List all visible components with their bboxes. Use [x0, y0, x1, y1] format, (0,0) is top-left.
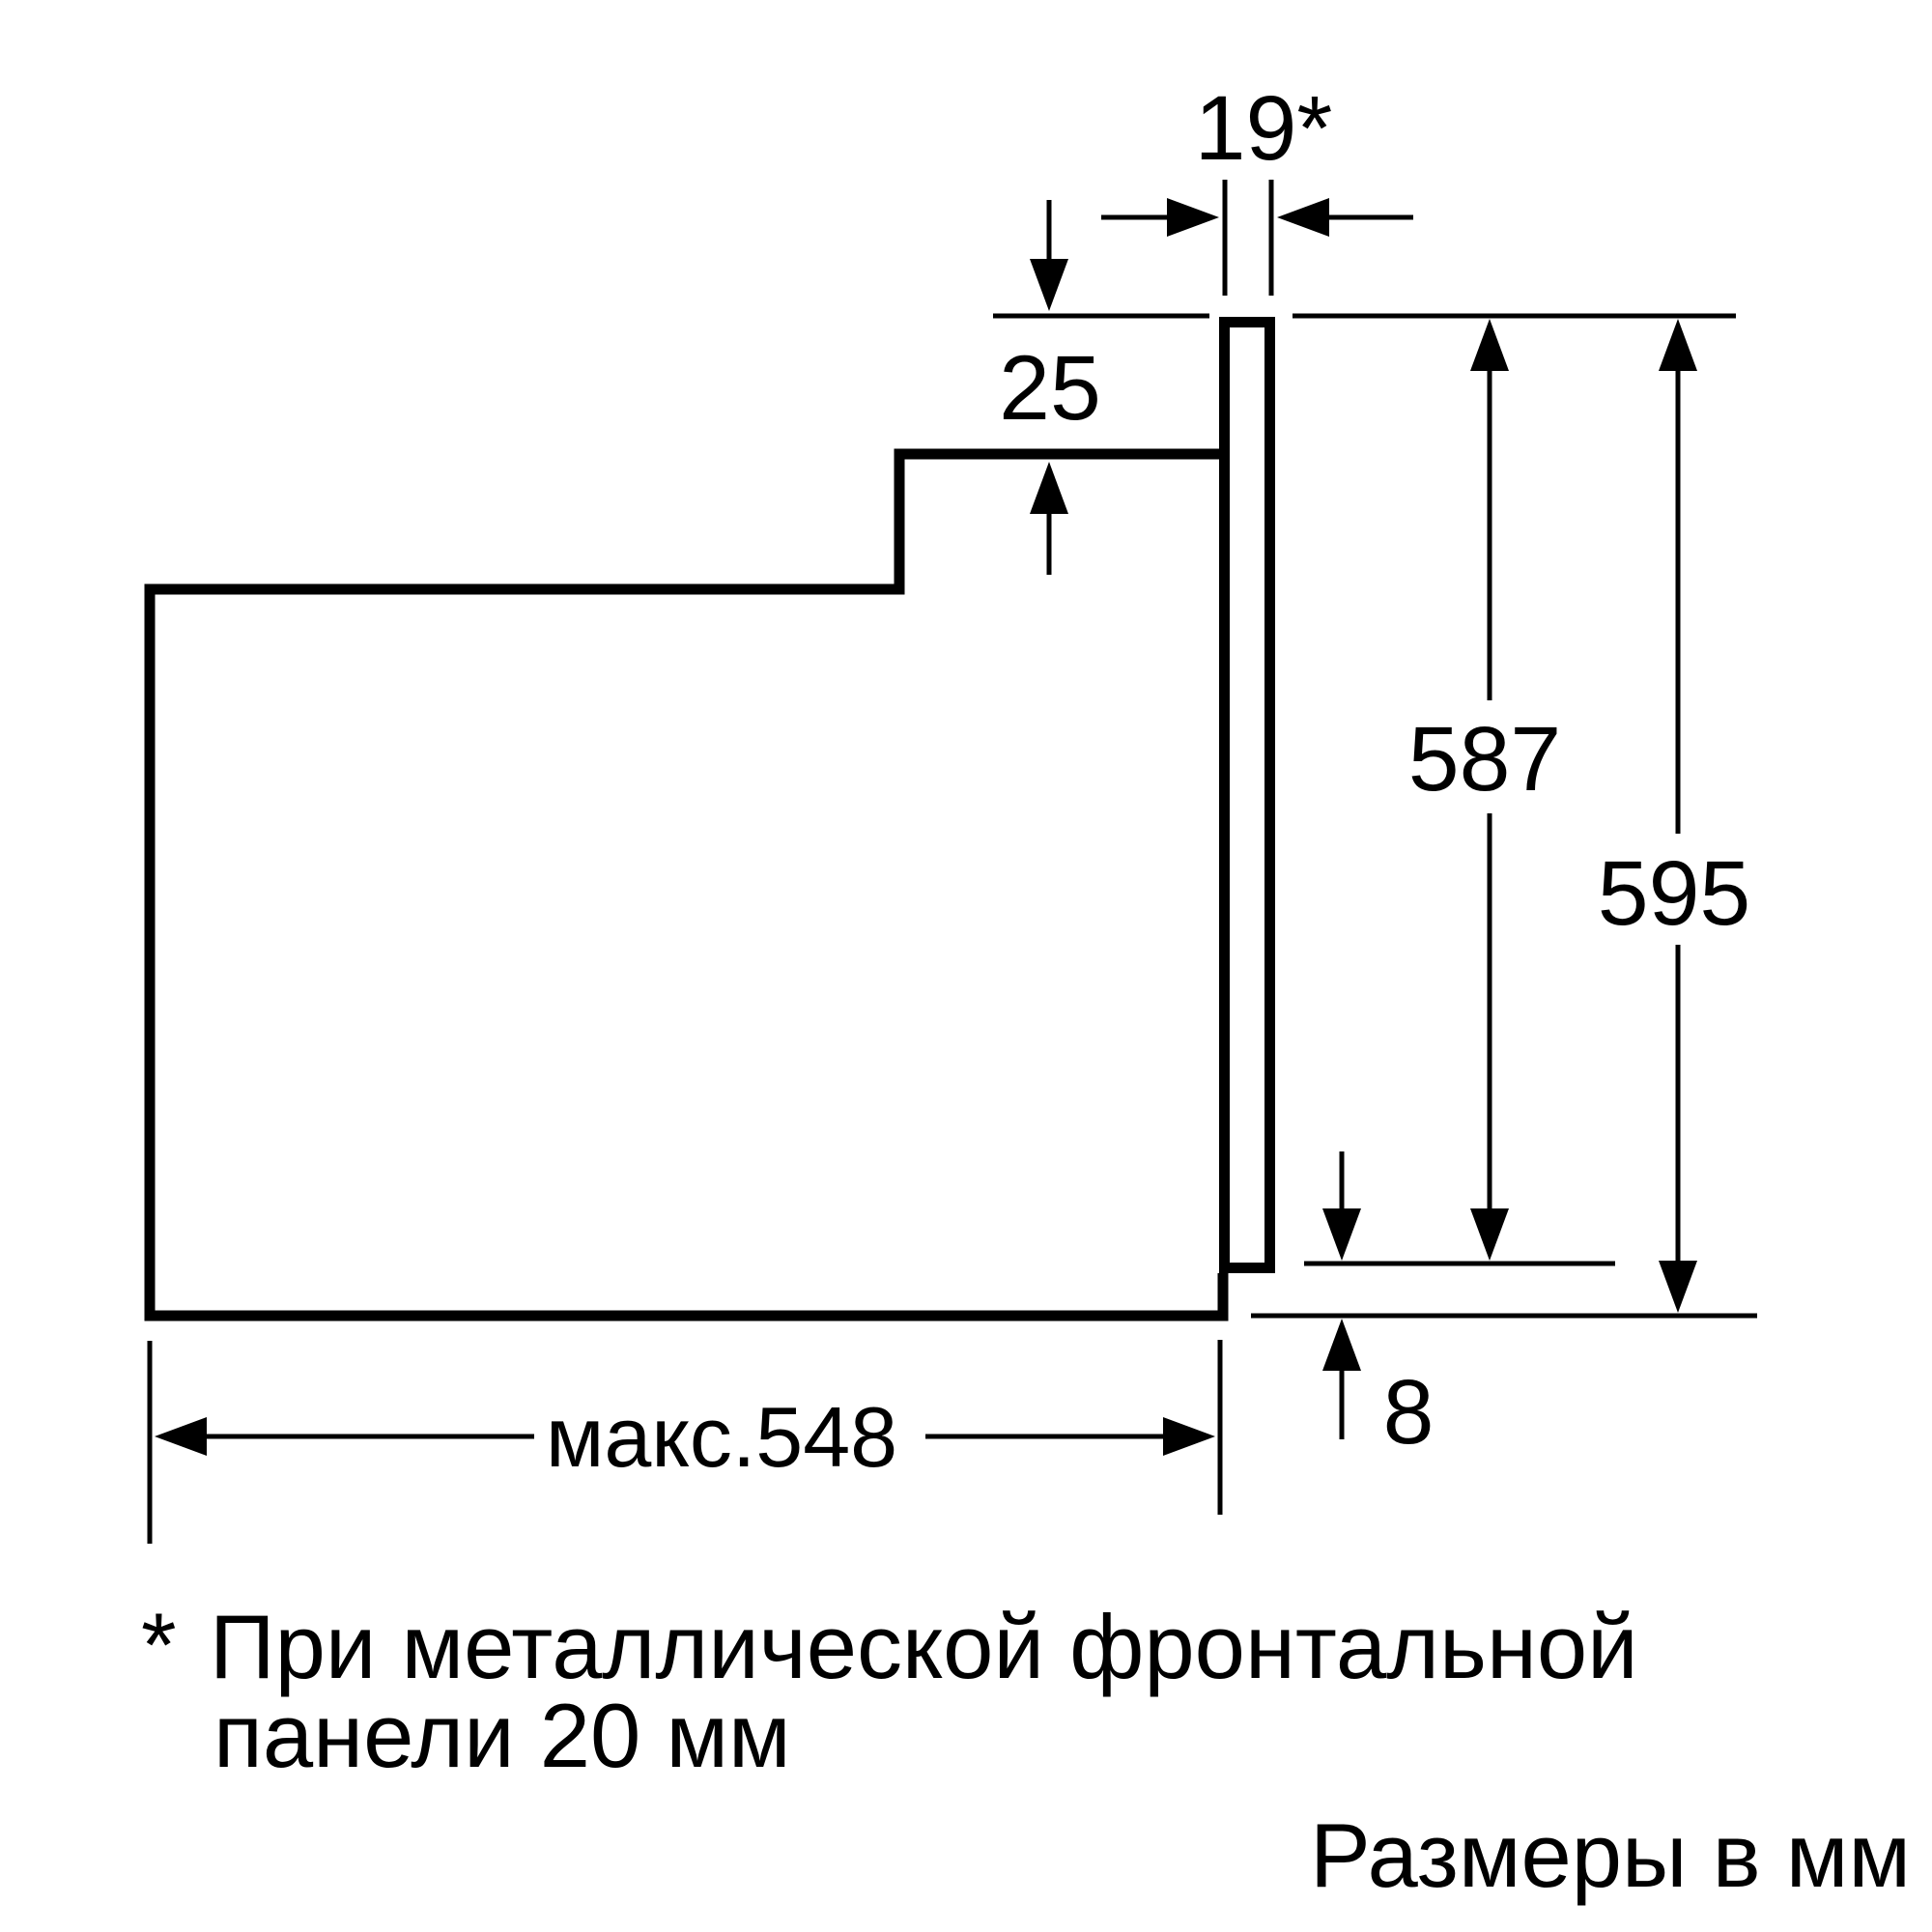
units-label: Размеры в мм [1310, 1804, 1911, 1906]
dim-label-step-height: 25 [999, 337, 1101, 440]
dim-25-arrow-down [1030, 200, 1068, 311]
dim-25-arrow-up [1030, 462, 1068, 575]
oven-body-outline [150, 454, 1223, 1316]
footnote-line2: панели 20 мм [213, 1685, 791, 1786]
dim-label-niche-height: 587 [1408, 708, 1562, 810]
footnote-marker: * [141, 1594, 177, 1695]
dimension-drawing-canvas: 19* 25 587 595 8 макс.548 * При металлич… [0, 0, 1932, 1932]
footnote-line1: При металлической фронтальной [210, 1596, 1638, 1697]
dim-19-arrow-right [1277, 198, 1413, 237]
dim-548-arrow-left [155, 1417, 534, 1456]
dim-label-total-height: 595 [1598, 842, 1751, 945]
dim-label-max-depth: макс.548 [546, 1389, 897, 1485]
dim-label-bottom-gap: 8 [1383, 1361, 1435, 1463]
dim-548-arrow-right [925, 1417, 1215, 1456]
dim-8-arrow-down [1322, 1151, 1361, 1261]
dim-label-top-gap: 19* [1195, 77, 1333, 180]
dim-19-arrow-left [1101, 198, 1219, 237]
front-panel [1225, 323, 1270, 1268]
dim-595-line [1659, 319, 1697, 1313]
dim-8-arrow-up [1322, 1319, 1361, 1439]
dimension-drawing-svg: 19* 25 587 595 8 макс.548 * При металлич… [0, 0, 1932, 1932]
